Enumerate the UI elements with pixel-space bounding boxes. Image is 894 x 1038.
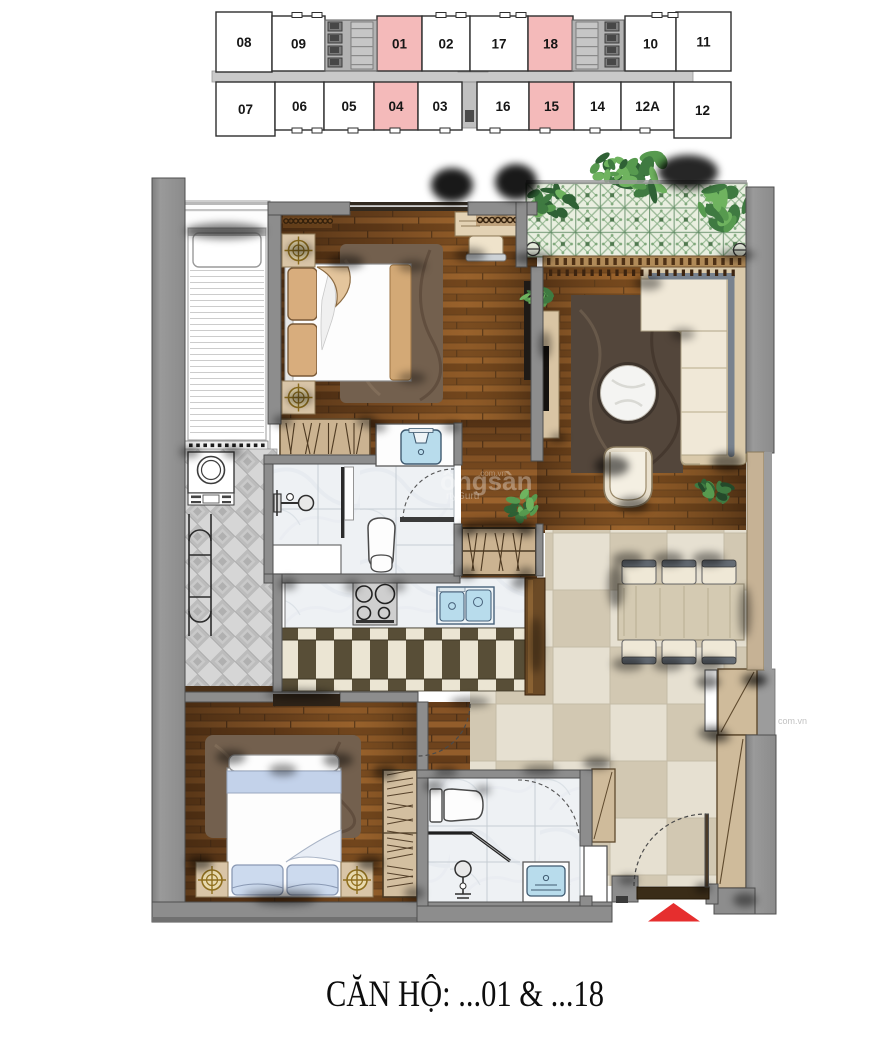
svg-text:08: 08 <box>236 35 252 50</box>
svg-text:18: 18 <box>543 37 559 52</box>
svg-text:14: 14 <box>590 99 606 114</box>
svg-text:16: 16 <box>495 99 511 114</box>
svg-text:04: 04 <box>388 99 404 114</box>
svg-text:03: 03 <box>432 99 448 114</box>
svg-text:12: 12 <box>695 103 710 118</box>
svg-text:17: 17 <box>491 37 506 52</box>
svg-text:12A: 12A <box>635 99 660 114</box>
svg-text:15: 15 <box>544 99 560 114</box>
svg-text:07: 07 <box>238 102 253 117</box>
svg-text:11: 11 <box>696 35 711 50</box>
svg-text:com.vn: com.vn <box>778 716 807 726</box>
svg-text:09: 09 <box>291 37 306 52</box>
svg-text:02: 02 <box>438 37 453 52</box>
svg-text:CĂN HỘ: ...01 & ...18: CĂN HỘ: ...01 & ...18 <box>326 973 604 1015</box>
svg-text:05: 05 <box>341 99 357 114</box>
svg-text:.com.vn: .com.vn <box>478 469 506 478</box>
svg-text:10: 10 <box>643 37 658 52</box>
svg-text:01: 01 <box>392 37 408 52</box>
svg-text:rtyGurù: rtyGurù <box>446 491 479 502</box>
svg-text:06: 06 <box>292 99 308 114</box>
